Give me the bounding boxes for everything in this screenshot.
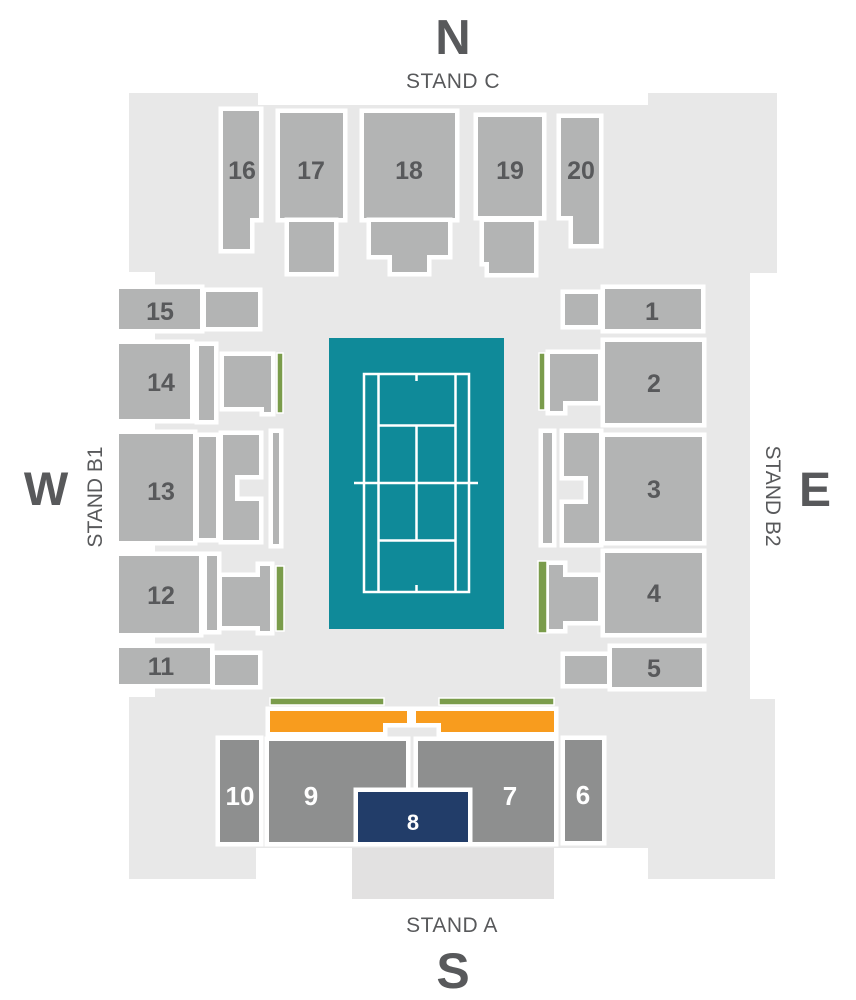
svg-text:STAND B2: STAND B2 [761, 445, 784, 546]
svg-text:5: 5 [647, 655, 661, 683]
svg-text:7: 7 [503, 781, 517, 811]
svg-text:20: 20 [567, 157, 595, 185]
svg-text:16: 16 [228, 157, 256, 185]
svg-text:STAND B1: STAND B1 [84, 446, 107, 547]
svg-text:3: 3 [647, 476, 661, 504]
svg-text:8: 8 [407, 810, 419, 835]
svg-text:13: 13 [147, 478, 175, 506]
svg-text:STAND A: STAND A [406, 914, 498, 937]
svg-text:4: 4 [647, 580, 661, 608]
svg-text:12: 12 [147, 582, 175, 610]
svg-text:18: 18 [395, 157, 423, 185]
svg-text:15: 15 [146, 298, 174, 326]
svg-text:STAND C: STAND C [406, 70, 500, 93]
svg-text:6: 6 [576, 780, 590, 810]
svg-text:W: W [24, 462, 69, 515]
svg-text:19: 19 [496, 157, 524, 185]
svg-text:17: 17 [297, 157, 325, 185]
svg-text:1: 1 [645, 298, 659, 326]
svg-text:2: 2 [647, 370, 661, 398]
svg-text:14: 14 [147, 369, 175, 397]
svg-text:S: S [436, 943, 469, 999]
svg-text:11: 11 [148, 653, 175, 681]
svg-text:10: 10 [226, 781, 255, 811]
svg-text:9: 9 [304, 781, 318, 811]
svg-text:N: N [435, 11, 470, 65]
svg-text:E: E [799, 464, 831, 517]
